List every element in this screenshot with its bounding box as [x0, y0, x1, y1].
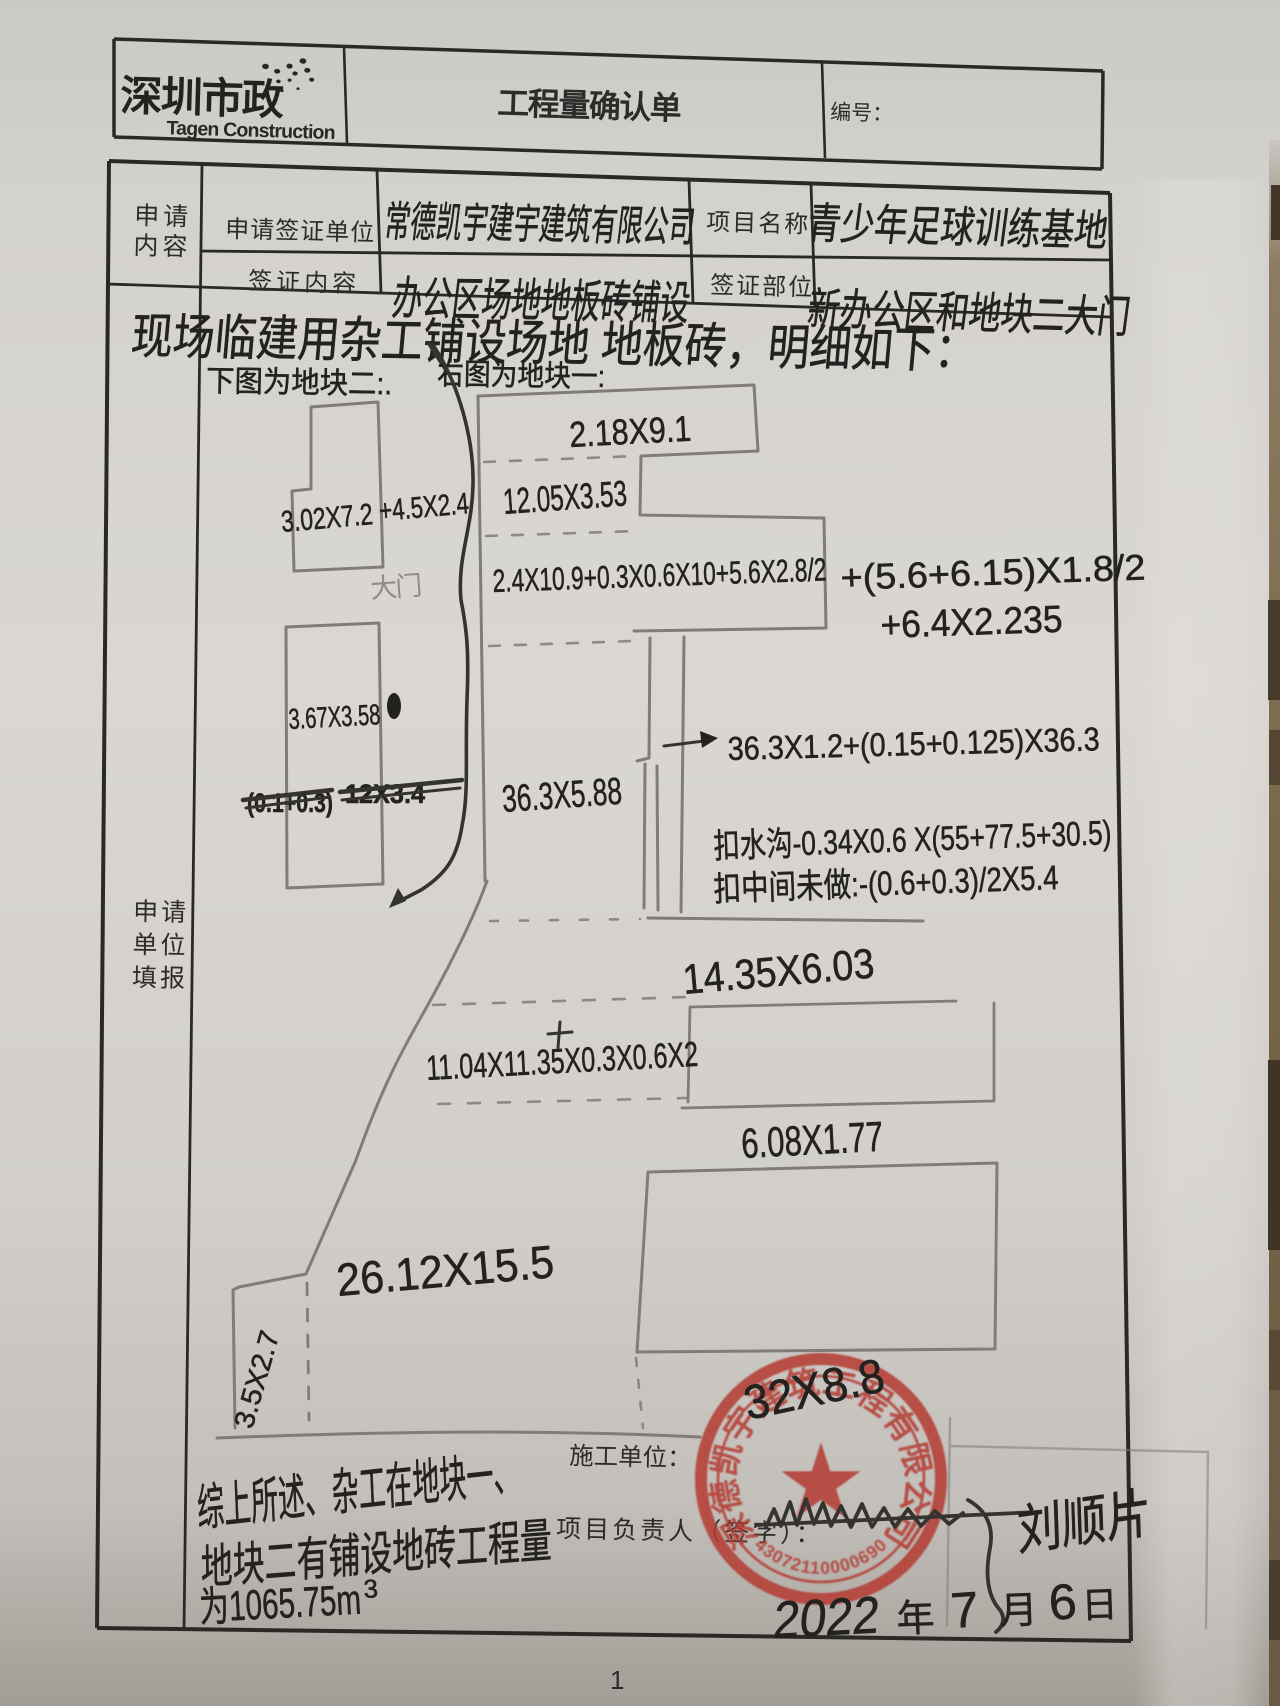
svg-text:施工单位：: 施工单位：	[569, 1442, 692, 1473]
svg-text:3: 3	[363, 1573, 379, 1604]
svg-text:年: 年	[896, 1598, 935, 1641]
svg-text:工程量确认单: 工程量确认单	[497, 85, 681, 126]
svg-text:内容: 内容	[133, 232, 192, 262]
svg-text:为1065.75m: 为1065.75m	[198, 1576, 362, 1631]
svg-text:右图为地块一:: 右图为地块一:	[437, 358, 606, 394]
svg-text:申请: 申请	[134, 202, 193, 232]
svg-text:7: 7	[949, 1581, 981, 1639]
svg-text:+6.4X2.235: +6.4X2.235	[880, 599, 1063, 647]
svg-text:3.67X3.58: 3.67X3.58	[288, 699, 382, 736]
svg-text:大门: 大门	[369, 571, 421, 604]
svg-text:深圳市政: 深圳市政	[120, 72, 285, 124]
svg-text:申请签证单位: 申请签证单位	[225, 216, 376, 247]
svg-text:12.05X3.53: 12.05X3.53	[502, 472, 629, 522]
svg-text:2.18X9.1: 2.18X9.1	[568, 408, 692, 455]
svg-text:项目名称: 项目名称	[706, 209, 811, 239]
svg-text:日: 日	[1081, 1584, 1118, 1626]
svg-text:青少年足球训练基地: 青少年足球训练基地	[805, 200, 1111, 256]
svg-text:填报: 填报	[132, 964, 188, 993]
svg-text:签证部位: 签证部位	[710, 272, 815, 302]
svg-text:1: 1	[610, 1665, 624, 1695]
svg-text:6: 6	[1047, 1573, 1079, 1631]
svg-text:月: 月	[999, 1590, 1038, 1633]
svg-text:Tagen Construction: Tagen Construction	[166, 117, 335, 144]
svg-text:36.3X5.88: 36.3X5.88	[501, 771, 624, 821]
svg-text:单位: 单位	[132, 931, 188, 960]
svg-text:下图为地块二:.: 下图为地块二:.	[206, 365, 393, 401]
svg-text:2022: 2022	[771, 1586, 882, 1650]
svg-text:申请: 申请	[133, 898, 189, 927]
svg-text:常德凯宇建宇建筑有限公司: 常德凯宇建宇建筑有限公司	[382, 198, 698, 250]
svg-text:6.08X1.77: 6.08X1.77	[740, 1113, 884, 1167]
svg-text:签证内容: 签证内容	[248, 268, 361, 298]
svg-text:编号：: 编号：	[830, 101, 894, 126]
